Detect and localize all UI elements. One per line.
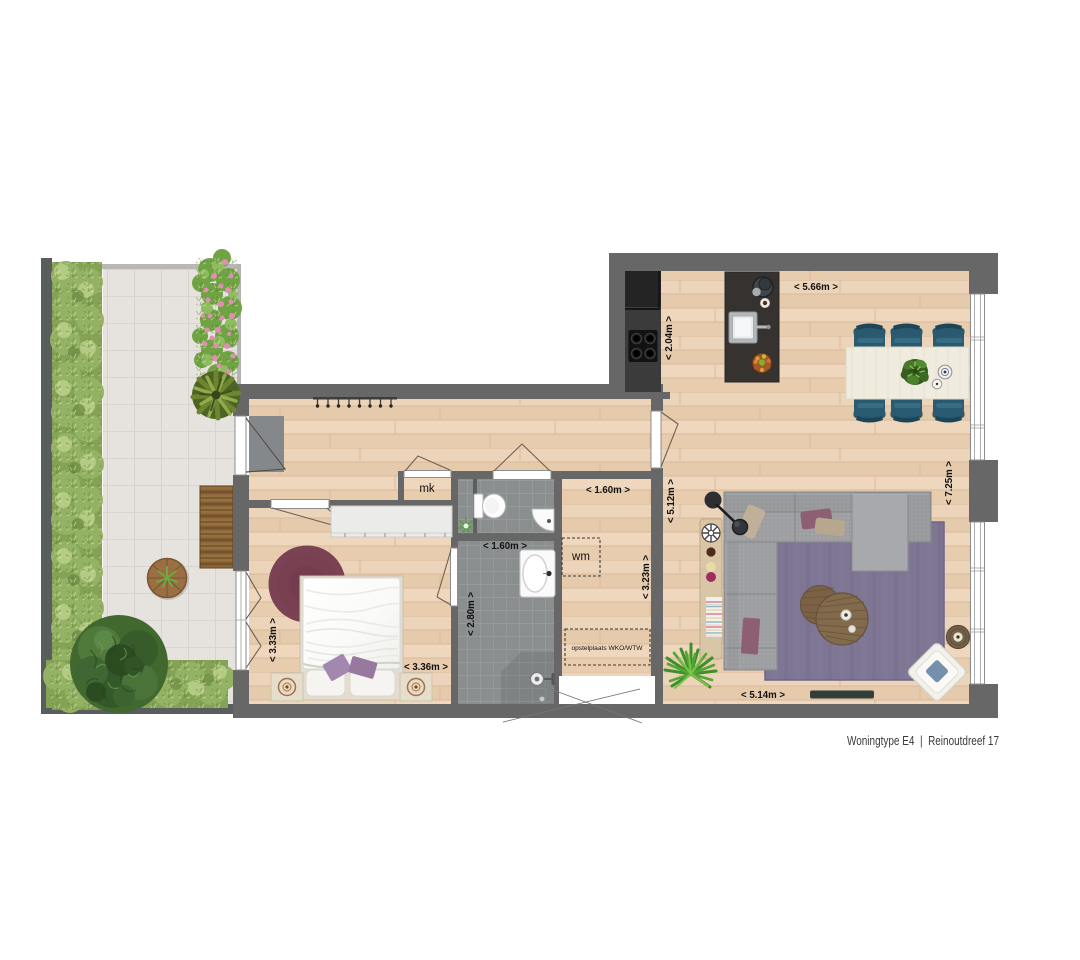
svg-text:< 3.33m >: < 3.33m >: [268, 618, 279, 662]
svg-text:opstelplaats WKO/WTW: opstelplaats WKO/WTW: [571, 645, 643, 652]
svg-text:< 5.14m >: < 5.14m >: [741, 690, 785, 701]
svg-text:mk: mk: [419, 483, 435, 495]
svg-text:< 5.12m >: < 5.12m >: [666, 479, 677, 523]
svg-text:< 1.60m >: < 1.60m >: [483, 541, 527, 552]
svg-text:Woningtype E4 | Reinoutdreef: Woningtype E4 | Reinoutdreef 17: [847, 734, 999, 748]
svg-text:< 7.25m >: < 7.25m >: [944, 461, 955, 505]
svg-text:wm: wm: [571, 551, 590, 563]
svg-text:< 2.80m >: < 2.80m >: [466, 592, 477, 636]
svg-text:< 5.66m >: < 5.66m >: [794, 282, 838, 293]
svg-text:< 3.36m >: < 3.36m >: [404, 662, 448, 673]
svg-text:< 2.04m >: < 2.04m >: [664, 316, 675, 360]
svg-text:< 3.23m >: < 3.23m >: [641, 555, 652, 599]
svg-text:< 1.60m >: < 1.60m >: [586, 485, 630, 496]
